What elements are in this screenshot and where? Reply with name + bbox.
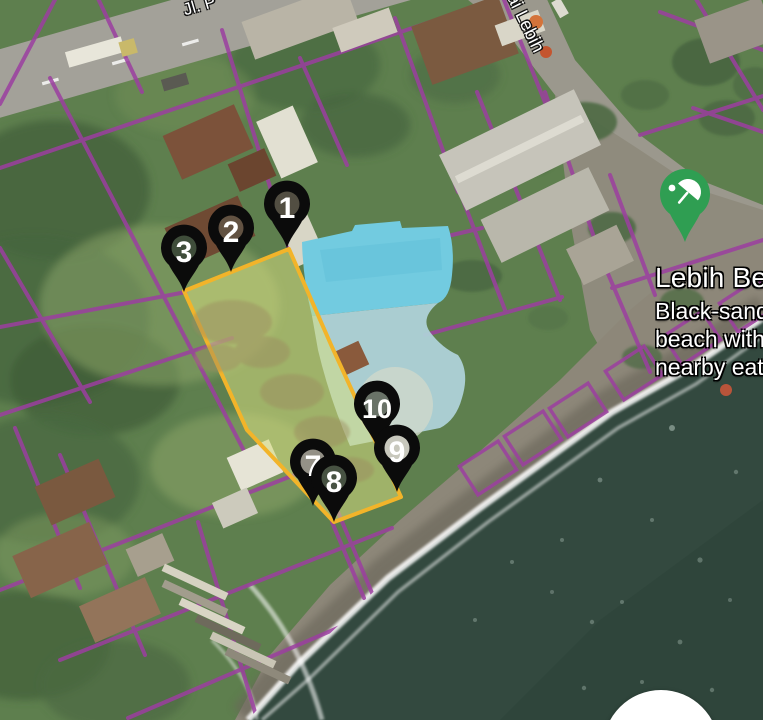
satellite-imagery: 3 2 1 10 9 7 8 [0,0,763,720]
poi-description-line: nearby eat [655,353,763,381]
svg-text:10: 10 [362,394,392,424]
poi-description-line: Black-sand [655,297,763,325]
svg-text:1: 1 [279,192,296,225]
satellite-map-canvas[interactable]: 3 2 1 10 9 7 8 Jl. P ai Lebih Lebih B [0,0,763,720]
svg-text:8: 8 [326,466,343,499]
poi-description-line: beach with [655,325,763,353]
poi-title[interactable]: Lebih Be [655,262,763,294]
svg-text:2: 2 [223,216,240,249]
svg-text:9: 9 [389,436,406,469]
poi-description: Black-sand beach with nearby eat [655,297,763,381]
svg-text:3: 3 [176,236,193,269]
